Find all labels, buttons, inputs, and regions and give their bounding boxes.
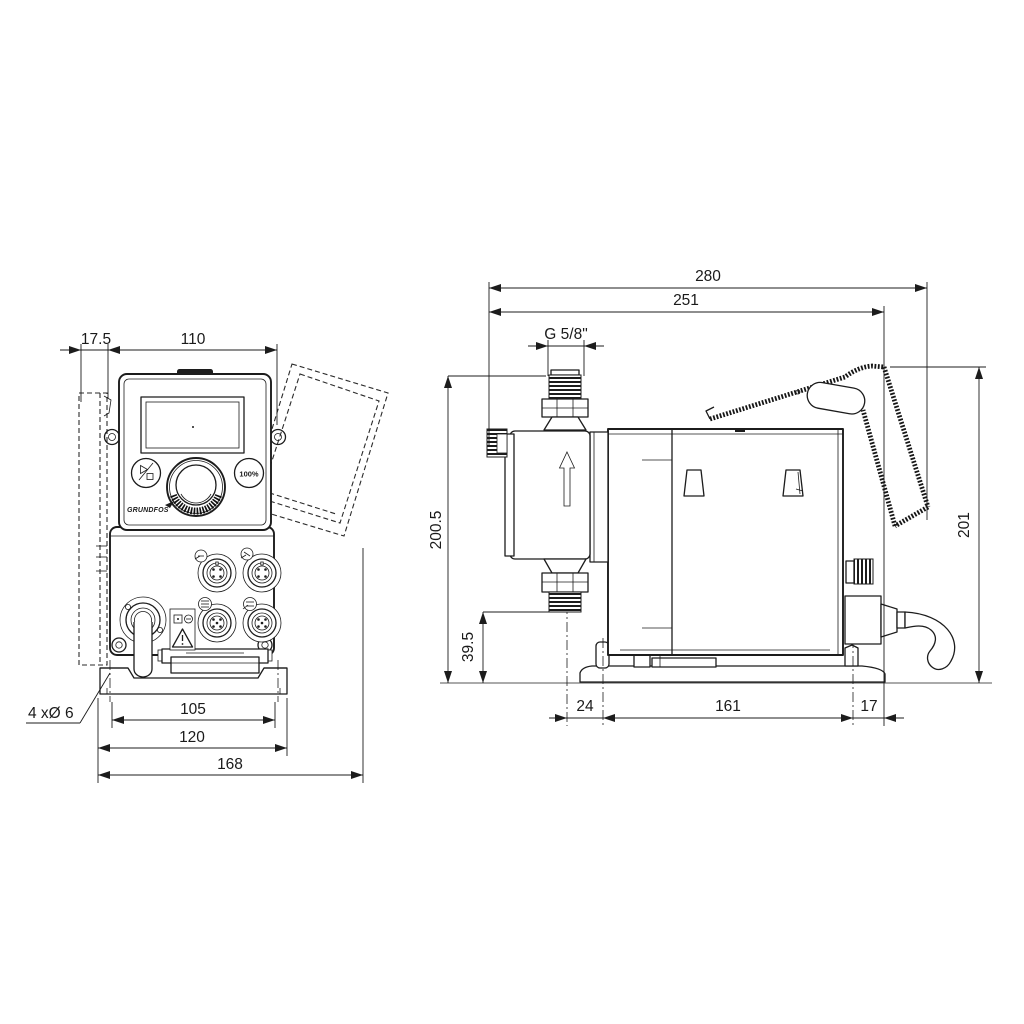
dim-foot-hole-spacing: 161 <box>715 698 741 715</box>
grundfos-logo-text: GRUNDFOS <box>127 507 169 514</box>
dimensional-drawing-page: 100% GRUNDFOS <box>0 0 1024 1024</box>
dim-thread-size: G 5/8" <box>544 326 587 343</box>
head-body <box>510 431 590 559</box>
dim-overall-length: 280 <box>695 268 721 285</box>
dim-body-width: 110 <box>181 331 206 348</box>
dim-overall-height: 201 <box>956 512 973 538</box>
front-view: 100% GRUNDFOS <box>26 331 388 783</box>
dim-plate-width: 120 <box>179 729 205 746</box>
dim-hole-spacing: 105 <box>180 701 206 718</box>
outlet-neck <box>544 559 586 573</box>
side-view: 280 251 G 5/8" 200.5 39.5 201 24 161 <box>428 268 992 727</box>
hundred-percent-button[interactable]: 100% <box>235 459 264 488</box>
outlet-thread <box>549 592 581 612</box>
connector-type-icon <box>243 598 257 611</box>
connector-type-icon <box>195 550 207 562</box>
motor-housing <box>608 428 843 655</box>
inlet-thread <box>549 375 581 400</box>
rear-threaded-stub <box>846 559 873 584</box>
power-cable-side <box>905 612 955 669</box>
connector-type-icon <box>241 548 253 560</box>
dim-overall-width: 168 <box>217 756 243 773</box>
power-cable <box>134 622 152 677</box>
inlet-union-nut <box>542 399 588 417</box>
control-panel: 100% GRUNDFOS <box>119 369 271 530</box>
connector-type-icon <box>199 598 212 611</box>
pump-dimensional-drawing: 100% GRUNDFOS <box>0 0 1024 1024</box>
clamp-rail <box>158 649 272 673</box>
rotary-knob[interactable] <box>167 458 225 516</box>
inlet-cap <box>551 370 579 375</box>
vent-valve <box>487 429 507 457</box>
outlet-union-nut <box>542 573 588 592</box>
inlet-neck <box>544 417 586 430</box>
start-stop-button[interactable] <box>132 459 161 488</box>
dim-outlet-height: 39.5 <box>460 632 477 662</box>
rear-cable-gland <box>845 596 905 644</box>
id-label <box>170 609 195 650</box>
dim-height-to-inlet: 200.5 <box>428 511 445 550</box>
dim-wall-plate-depth: 17.5 <box>81 331 111 348</box>
hole-note-leader <box>80 673 110 723</box>
hole-note-label: 4 xØ 6 <box>28 705 74 722</box>
dim-length-to-plate: 251 <box>673 292 699 309</box>
hundred-percent-label: 100% <box>239 470 259 479</box>
dim-foot-edge: 17 <box>860 698 877 715</box>
wall-plate-hidden <box>79 393 111 665</box>
hood-grip <box>805 380 867 416</box>
dosing-head <box>487 370 590 726</box>
head-bracket <box>590 432 608 562</box>
dim-outlet-to-hole: 24 <box>576 698 594 715</box>
